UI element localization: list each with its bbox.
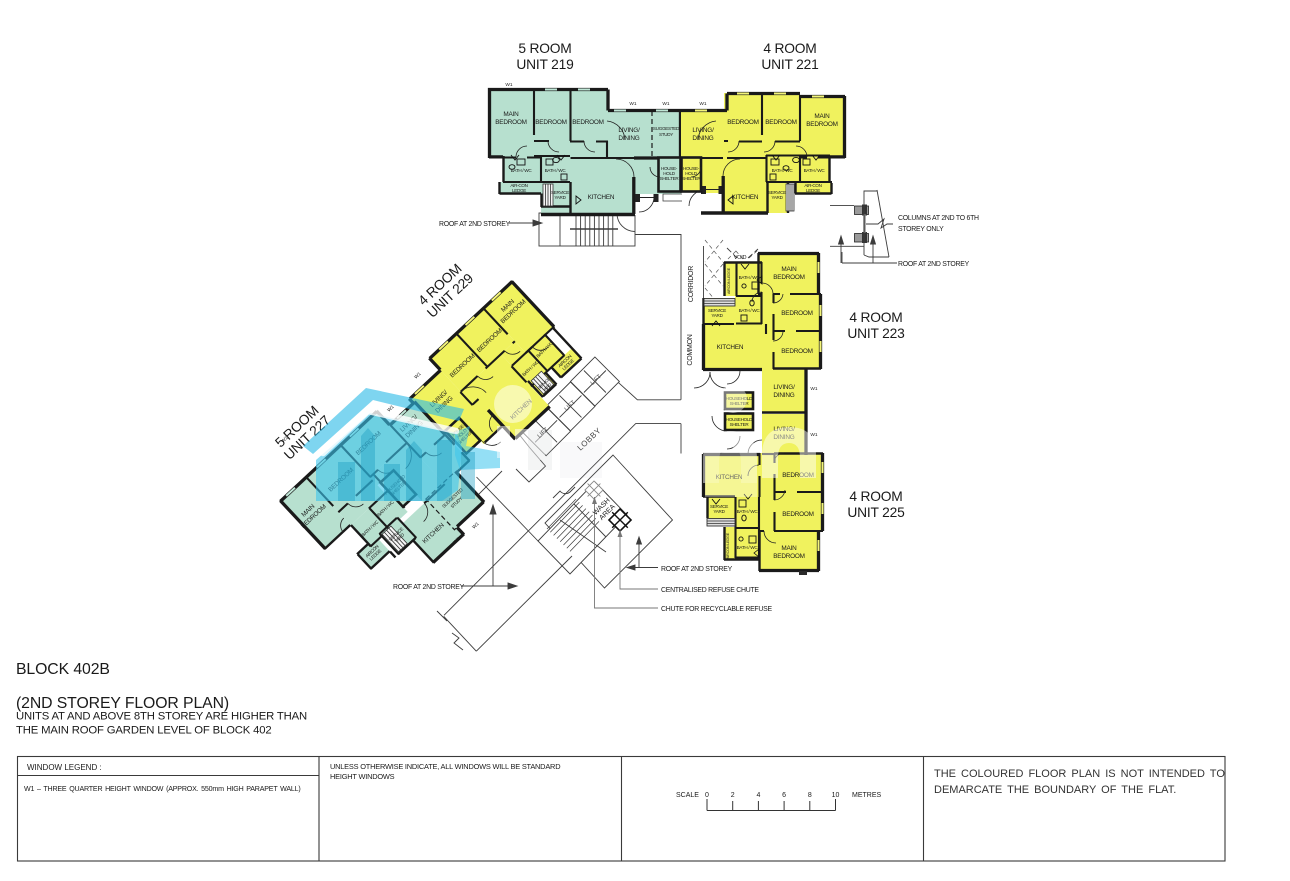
svg-text:UNIT 223: UNIT 223 bbox=[847, 326, 905, 341]
svg-text:COMMON: COMMON bbox=[687, 334, 694, 365]
svg-text:KITCHEN: KITCHEN bbox=[732, 194, 759, 201]
svg-text:SHELTER: SHELTER bbox=[660, 176, 680, 181]
svg-text:COLUMNS AT 2ND TO 6TH: COLUMNS AT 2ND TO 6TH bbox=[898, 215, 979, 222]
svg-text:YARD: YARD bbox=[711, 313, 723, 318]
svg-text:UNIT 225: UNIT 225 bbox=[847, 505, 905, 520]
svg-text:MAIN: MAIN bbox=[781, 266, 797, 273]
svg-text:4: 4 bbox=[756, 792, 760, 799]
svg-text:BEDROOM: BEDROOM bbox=[495, 119, 527, 126]
svg-text:4 ROOM: 4 ROOM bbox=[849, 310, 902, 325]
svg-text:THE MAIN ROOF GARDEN LEVEL OF: THE MAIN ROOF GARDEN LEVEL OF BLOCK 402 bbox=[16, 725, 272, 737]
svg-text:VOID: VOID bbox=[734, 255, 747, 261]
svg-text:UNLESS OTHERWISE INDICATE, ALL: UNLESS OTHERWISE INDICATE, ALL WINDOWS W… bbox=[330, 762, 560, 771]
svg-text:MAIN: MAIN bbox=[503, 111, 519, 118]
svg-text:CENTRALISED REFUSE CHUTE: CENTRALISED REFUSE CHUTE bbox=[661, 587, 759, 594]
svg-text:BLOCK 402B: BLOCK 402B bbox=[16, 661, 110, 678]
svg-text:CHUTE FOR RECYCLABLE REFUSE: CHUTE FOR RECYCLABLE REFUSE bbox=[661, 606, 772, 613]
svg-text:SUGGESTED: SUGGESTED bbox=[653, 126, 680, 131]
svg-text:LIVING/: LIVING/ bbox=[618, 127, 640, 134]
svg-text:BATH / WC: BATH / WC bbox=[545, 168, 567, 173]
svg-text:LIVING/: LIVING/ bbox=[773, 384, 795, 391]
svg-text:BATH / WC: BATH / WC bbox=[737, 509, 759, 514]
svg-text:SCALE: SCALE bbox=[676, 792, 699, 799]
svg-text:DINING: DINING bbox=[773, 392, 794, 399]
svg-text:DEMARCATE THE BOUNDARY OF THE: DEMARCATE THE BOUNDARY OF THE FLAT. bbox=[934, 784, 1176, 796]
svg-text:BEDROOM: BEDROOM bbox=[781, 348, 813, 355]
svg-text:BEDROOM: BEDROOM bbox=[781, 310, 813, 317]
svg-text:W1: W1 bbox=[810, 386, 818, 392]
svg-text:BEDROOM: BEDROOM bbox=[535, 119, 567, 126]
svg-text:W1: W1 bbox=[505, 82, 513, 88]
svg-text:THE COLOURED FLOOR PLAN IS NOT: THE COLOURED FLOOR PLAN IS NOT INTENDED … bbox=[934, 768, 1225, 780]
svg-text:ROOF AT 2ND STOREY: ROOF AT 2ND STOREY bbox=[439, 221, 511, 228]
svg-text:8: 8 bbox=[808, 792, 812, 799]
svg-text:SHELTER: SHELTER bbox=[730, 422, 750, 427]
svg-text:BATH / WC: BATH / WC bbox=[772, 168, 794, 173]
svg-text:YARD: YARD bbox=[771, 195, 783, 200]
svg-text:2: 2 bbox=[731, 792, 735, 799]
svg-text:BEDROOM: BEDROOM bbox=[572, 119, 604, 126]
svg-text:DINING: DINING bbox=[692, 135, 713, 142]
svg-text:10: 10 bbox=[832, 792, 840, 799]
svg-text:W1: W1 bbox=[629, 101, 637, 107]
svg-text:STUDY: STUDY bbox=[659, 132, 673, 137]
svg-text:(2ND STOREY FLOOR PLAN): (2ND STOREY FLOOR PLAN) bbox=[16, 695, 229, 712]
svg-text:BATH / WC: BATH / WC bbox=[511, 168, 533, 173]
svg-text:LEDGE: LEDGE bbox=[512, 188, 526, 193]
svg-text:W1: W1 bbox=[699, 101, 707, 107]
svg-text:BATH / WC: BATH / WC bbox=[739, 275, 761, 280]
svg-text:YARD: YARD bbox=[554, 195, 566, 200]
svg-text:4 ROOM: 4 ROOM bbox=[763, 41, 816, 56]
svg-text:HEIGHT WINDOWS: HEIGHT WINDOWS bbox=[330, 772, 395, 781]
svg-text:METRES: METRES bbox=[852, 792, 882, 799]
svg-text:BATH / WC: BATH / WC bbox=[804, 168, 826, 173]
svg-text:W1: W1 bbox=[662, 101, 670, 107]
svg-text:UNIT 219: UNIT 219 bbox=[516, 57, 574, 72]
svg-text:AIRCON LEDGE: AIRCON LEDGE bbox=[726, 532, 730, 559]
svg-text:AIRCON LEDGE: AIRCON LEDGE bbox=[727, 267, 731, 294]
svg-text:KITCHEN: KITCHEN bbox=[717, 344, 744, 351]
svg-text:4 ROOM: 4 ROOM bbox=[849, 489, 902, 504]
svg-text:6: 6 bbox=[782, 792, 786, 799]
svg-text:STOREY ONLY: STOREY ONLY bbox=[898, 226, 944, 233]
svg-text:KITCHEN: KITCHEN bbox=[588, 194, 615, 201]
svg-text:5 ROOM: 5 ROOM bbox=[518, 41, 571, 56]
svg-text:LEDGE: LEDGE bbox=[806, 188, 820, 193]
svg-text:MAIN: MAIN bbox=[781, 545, 797, 552]
svg-text:BATH / WC: BATH / WC bbox=[739, 308, 761, 313]
svg-text:MAIN: MAIN bbox=[814, 113, 830, 120]
svg-text:DINING: DINING bbox=[618, 135, 639, 142]
svg-text:ROOF AT 2ND STOREY: ROOF AT 2ND STOREY bbox=[898, 261, 970, 268]
svg-text:CORRIDOR: CORRIDOR bbox=[688, 266, 695, 302]
svg-text:BEDROOM: BEDROOM bbox=[727, 119, 759, 126]
svg-text:BEDROOM: BEDROOM bbox=[773, 553, 805, 560]
svg-text:BATH / WC: BATH / WC bbox=[737, 545, 759, 550]
svg-text:LIVING/: LIVING/ bbox=[692, 127, 714, 134]
svg-text:UNIT 221: UNIT 221 bbox=[761, 57, 818, 72]
svg-text:BEDROOM: BEDROOM bbox=[782, 511, 814, 518]
svg-text:ROOF AT 2ND STOREY: ROOF AT 2ND STOREY bbox=[393, 584, 465, 591]
svg-text:BEDROOM: BEDROOM bbox=[806, 121, 838, 128]
svg-text:BEDROOM: BEDROOM bbox=[773, 274, 805, 281]
svg-text:BEDROOM: BEDROOM bbox=[765, 119, 797, 126]
svg-text:WINDOW LEGEND :: WINDOW LEGEND : bbox=[27, 763, 102, 772]
svg-text:SHELTER: SHELTER bbox=[682, 176, 702, 181]
svg-text:0: 0 bbox=[705, 792, 709, 799]
svg-text:YARD: YARD bbox=[713, 509, 725, 514]
svg-text:ROOF AT 2ND STOREY: ROOF AT 2ND STOREY bbox=[661, 566, 733, 573]
svg-text:W1 – THREE QUARTER HEIGHT WI: W1 – THREE QUARTER HEIGHT WINDOW (APPROX… bbox=[24, 785, 301, 793]
svg-text:UNITS AT AND ABOVE 8TH STOREY: UNITS AT AND ABOVE 8TH STOREY ARE HIGHER… bbox=[16, 711, 307, 723]
